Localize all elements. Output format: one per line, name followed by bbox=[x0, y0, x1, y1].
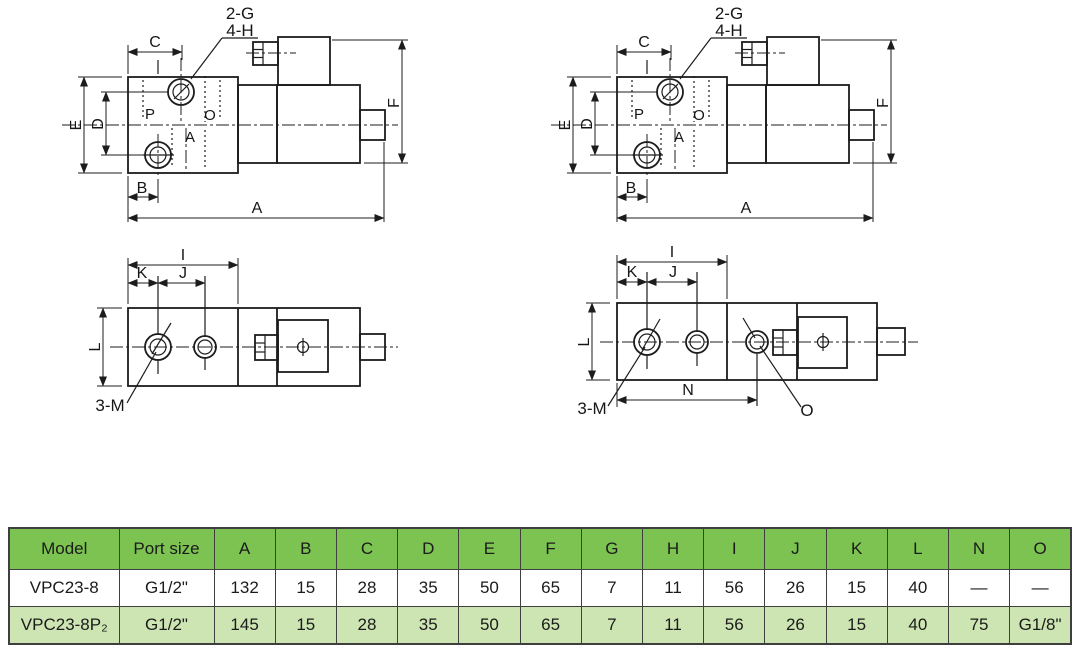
callout-leader bbox=[191, 38, 258, 79]
cell-c: 28 bbox=[336, 570, 397, 607]
column-header-b: B bbox=[275, 528, 336, 570]
dim-k-label: K bbox=[137, 265, 148, 282]
cell-k: 15 bbox=[826, 607, 887, 645]
dim-j-label: J bbox=[179, 265, 187, 282]
cell-j: 26 bbox=[765, 607, 826, 645]
cell-l: 40 bbox=[887, 570, 948, 607]
cell-f: 65 bbox=[520, 607, 581, 645]
table-row-vpc23-8: VPC23-8 G1/2" 132 15 28 35 50 65 7 11 56… bbox=[9, 570, 1071, 607]
dim-e-label: E bbox=[68, 120, 85, 131]
cell-d: 35 bbox=[398, 570, 459, 607]
column-header-l: L bbox=[887, 528, 948, 570]
callout-o-label: O bbox=[800, 401, 813, 420]
table-row-vpc23-8p2: VPC23-8P₂ G1/2" 145 15 28 35 50 65 7 11 … bbox=[9, 607, 1071, 645]
port-holes bbox=[145, 276, 309, 374]
cell-portsize: G1/2" bbox=[119, 570, 214, 607]
cell-c: 28 bbox=[336, 607, 397, 645]
cell-d: 35 bbox=[398, 607, 459, 645]
cell-model: VPC23-8 bbox=[9, 570, 119, 607]
callout-3m-label: 3-M bbox=[577, 399, 606, 418]
cell-b: 15 bbox=[275, 570, 336, 607]
dim-f-label: F bbox=[386, 98, 403, 108]
port-o-label: O bbox=[204, 107, 216, 124]
dim-n-label: N bbox=[682, 382, 694, 399]
cell-i: 56 bbox=[704, 607, 765, 645]
column-header-model: Model bbox=[9, 528, 119, 570]
column-header-a: A bbox=[214, 528, 275, 570]
column-header-d: D bbox=[398, 528, 459, 570]
table-header-row: Model Port size A B C D E F G H I J K L … bbox=[9, 528, 1071, 570]
column-header-i: I bbox=[704, 528, 765, 570]
port-holes bbox=[634, 272, 829, 406]
cell-g: 7 bbox=[581, 570, 642, 607]
dim-a-label: A bbox=[252, 200, 263, 217]
callout-4h-label: 4-H bbox=[226, 21, 253, 40]
drawing-top-view-right: I K J L N 3-M O bbox=[576, 244, 918, 420]
column-header-portsize: Port size bbox=[119, 528, 214, 570]
dim-l-label: L bbox=[576, 337, 593, 346]
cell-n: — bbox=[948, 570, 1009, 607]
cell-e: 50 bbox=[459, 607, 520, 645]
page: 2-G 4-H C E D B A F P O A bbox=[0, 0, 1080, 647]
cell-o: — bbox=[1010, 570, 1071, 607]
dim-d-label: D bbox=[90, 118, 107, 130]
column-header-j: J bbox=[765, 528, 826, 570]
center-lines bbox=[62, 53, 398, 177]
drawing-side-view-left: 2-G 4-H C E D B A F P O A bbox=[62, 4, 408, 222]
column-header-h: H bbox=[642, 528, 703, 570]
cell-portsize: G1/2" bbox=[119, 607, 214, 645]
column-header-o: O bbox=[1010, 528, 1071, 570]
cell-e: 50 bbox=[459, 570, 520, 607]
cell-k: 15 bbox=[826, 570, 887, 607]
dim-k-label: K bbox=[627, 264, 638, 281]
cell-j: 26 bbox=[765, 570, 826, 607]
cell-o: G1/8" bbox=[1010, 607, 1071, 645]
column-header-c: C bbox=[336, 528, 397, 570]
column-header-n: N bbox=[948, 528, 1009, 570]
dim-c-label: C bbox=[149, 34, 161, 51]
drawing-side-view-right bbox=[551, 4, 897, 222]
cell-i: 56 bbox=[704, 570, 765, 607]
column-header-e: E bbox=[459, 528, 520, 570]
dimension-table: Model Port size A B C D E F G H I J K L … bbox=[8, 527, 1072, 645]
cell-g: 7 bbox=[581, 607, 642, 645]
cell-f: 65 bbox=[520, 570, 581, 607]
cell-h: 11 bbox=[642, 607, 703, 645]
cell-model: VPC23-8P₂ bbox=[9, 607, 119, 645]
dim-j-label: J bbox=[669, 264, 677, 281]
cell-n: 75 bbox=[948, 607, 1009, 645]
column-header-g: G bbox=[581, 528, 642, 570]
cell-b: 15 bbox=[275, 607, 336, 645]
callout-3m-label: 3-M bbox=[95, 396, 124, 415]
cell-a: 145 bbox=[214, 607, 275, 645]
drawing-top-view-left: I K J L 3-M bbox=[87, 247, 398, 415]
dim-l-label: L bbox=[87, 342, 104, 351]
dim-i-label: I bbox=[181, 247, 185, 264]
dim-b-label: B bbox=[137, 180, 148, 197]
cell-l: 40 bbox=[887, 607, 948, 645]
dimension-lines bbox=[97, 258, 238, 403]
dim-i-label: I bbox=[670, 244, 674, 261]
column-header-f: F bbox=[520, 528, 581, 570]
column-header-k: K bbox=[826, 528, 887, 570]
cell-a: 132 bbox=[214, 570, 275, 607]
valve-body-outline bbox=[128, 37, 385, 173]
port-a-label: A bbox=[185, 129, 195, 146]
technical-drawing-canvas: 2-G 4-H C E D B A F P O A bbox=[0, 0, 1080, 520]
port-p-label: P bbox=[145, 106, 155, 123]
cell-h: 11 bbox=[642, 570, 703, 607]
